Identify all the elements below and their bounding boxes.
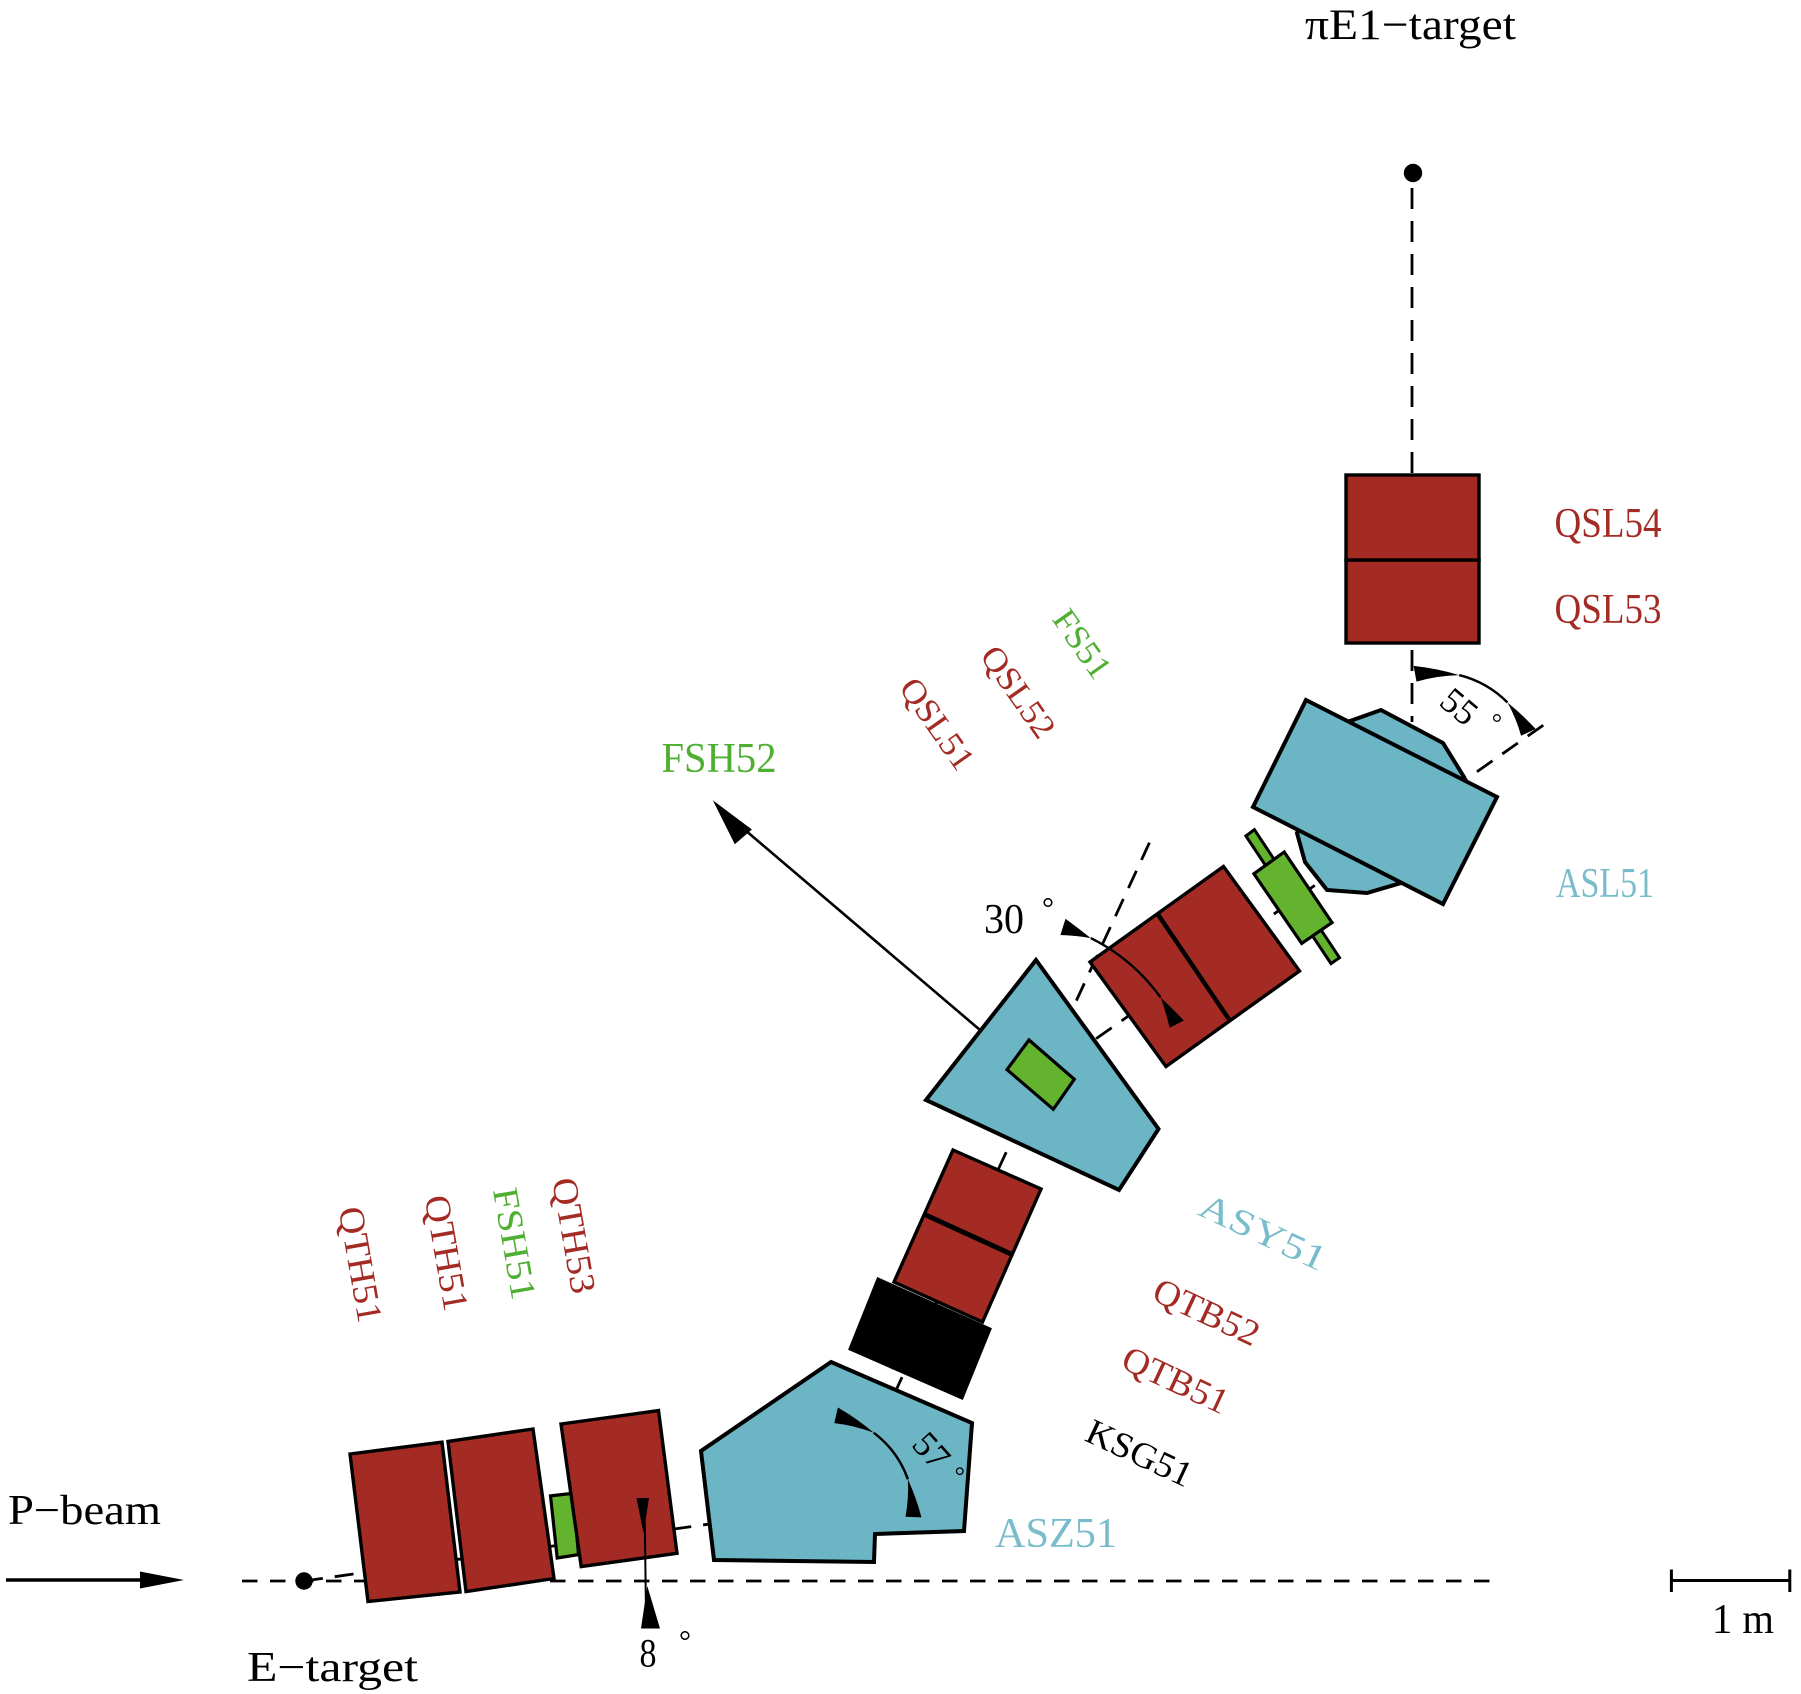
svg-text:P−beam: P−beam xyxy=(8,1488,161,1534)
svg-text:30: 30 xyxy=(984,897,1024,943)
svg-text:1 m: 1 m xyxy=(1712,1597,1774,1643)
svg-text:ASZ51: ASZ51 xyxy=(995,1511,1117,1557)
svg-text:QSL54: QSL54 xyxy=(1555,501,1662,547)
svg-text:ASL51: ASL51 xyxy=(1556,861,1654,907)
svg-text:FSH52: FSH52 xyxy=(662,736,777,782)
svg-text:E−target: E−target xyxy=(247,1645,418,1691)
svg-text:°: ° xyxy=(679,1625,691,1658)
svg-text:°: ° xyxy=(1042,892,1054,925)
svg-text:8: 8 xyxy=(640,1631,657,1676)
svg-text:πE1−target: πE1−target xyxy=(1305,2,1516,49)
svg-text:QSL53: QSL53 xyxy=(1555,587,1662,633)
